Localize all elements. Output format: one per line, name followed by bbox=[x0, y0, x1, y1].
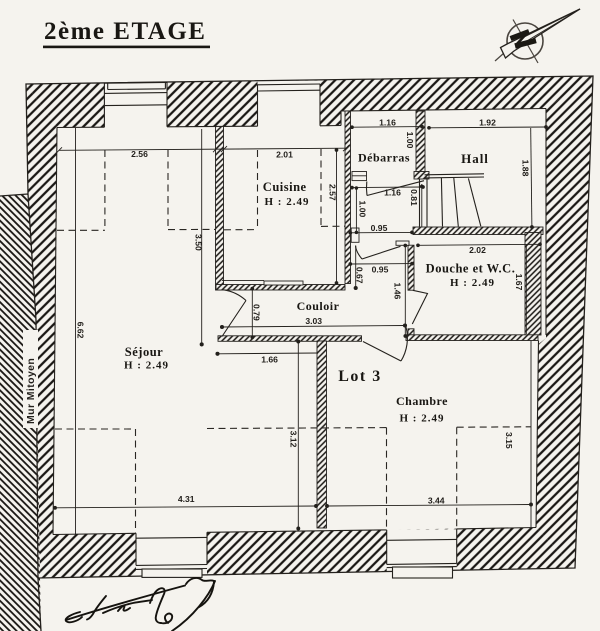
svg-text:3.44: 3.44 bbox=[428, 495, 445, 505]
svg-text:2.01: 2.01 bbox=[276, 149, 293, 159]
svg-text:3.50: 3.50 bbox=[194, 234, 204, 251]
svg-text:3.03: 3.03 bbox=[305, 316, 322, 326]
svg-text:1.66: 1.66 bbox=[261, 355, 278, 365]
svg-text:2ème ETAGE: 2ème ETAGE bbox=[44, 18, 206, 45]
svg-text:Couloir: Couloir bbox=[297, 299, 340, 313]
svg-text:4.31: 4.31 bbox=[178, 494, 195, 504]
svg-text:H : 2.49: H : 2.49 bbox=[124, 360, 169, 372]
svg-text:Débarras: Débarras bbox=[358, 150, 410, 164]
svg-text:1.67: 1.67 bbox=[514, 274, 524, 291]
svg-text:1.16: 1.16 bbox=[379, 118, 396, 128]
svg-text:Séjour: Séjour bbox=[125, 345, 163, 359]
svg-text:Chambre: Chambre bbox=[396, 394, 448, 408]
svg-text:3.15: 3.15 bbox=[504, 432, 514, 449]
svg-text:0.95: 0.95 bbox=[372, 264, 389, 274]
svg-text:2.56: 2.56 bbox=[131, 149, 148, 159]
svg-text:2.57: 2.57 bbox=[328, 184, 338, 201]
svg-text:0.95: 0.95 bbox=[371, 223, 388, 233]
svg-text:6.62: 6.62 bbox=[76, 322, 86, 339]
svg-text:1.00: 1.00 bbox=[358, 201, 368, 218]
svg-text:Hall: Hall bbox=[461, 151, 489, 166]
svg-text:1.92: 1.92 bbox=[479, 117, 496, 127]
svg-text:Lot 3: Lot 3 bbox=[338, 368, 382, 385]
svg-text:Mur Mitoyen: Mur Mitoyen bbox=[25, 358, 37, 424]
svg-text:1.88: 1.88 bbox=[521, 160, 531, 177]
svg-text:H : 2.49: H : 2.49 bbox=[265, 196, 310, 208]
svg-text:0.67: 0.67 bbox=[355, 267, 365, 284]
svg-text:Douche et W.C.: Douche et W.C. bbox=[426, 261, 516, 275]
svg-text:3.12: 3.12 bbox=[289, 431, 299, 448]
svg-text:2.02: 2.02 bbox=[469, 245, 486, 255]
svg-text:0.81: 0.81 bbox=[409, 189, 419, 206]
svg-text:H : 2.49: H : 2.49 bbox=[400, 413, 445, 425]
svg-text:H : 2.49: H : 2.49 bbox=[450, 277, 495, 289]
svg-text:1.46: 1.46 bbox=[393, 283, 403, 300]
svg-text:0.79: 0.79 bbox=[252, 304, 262, 321]
svg-text:1.00: 1.00 bbox=[405, 132, 415, 149]
svg-text:Cuisine: Cuisine bbox=[263, 180, 307, 194]
svg-text:1.16: 1.16 bbox=[384, 188, 401, 198]
